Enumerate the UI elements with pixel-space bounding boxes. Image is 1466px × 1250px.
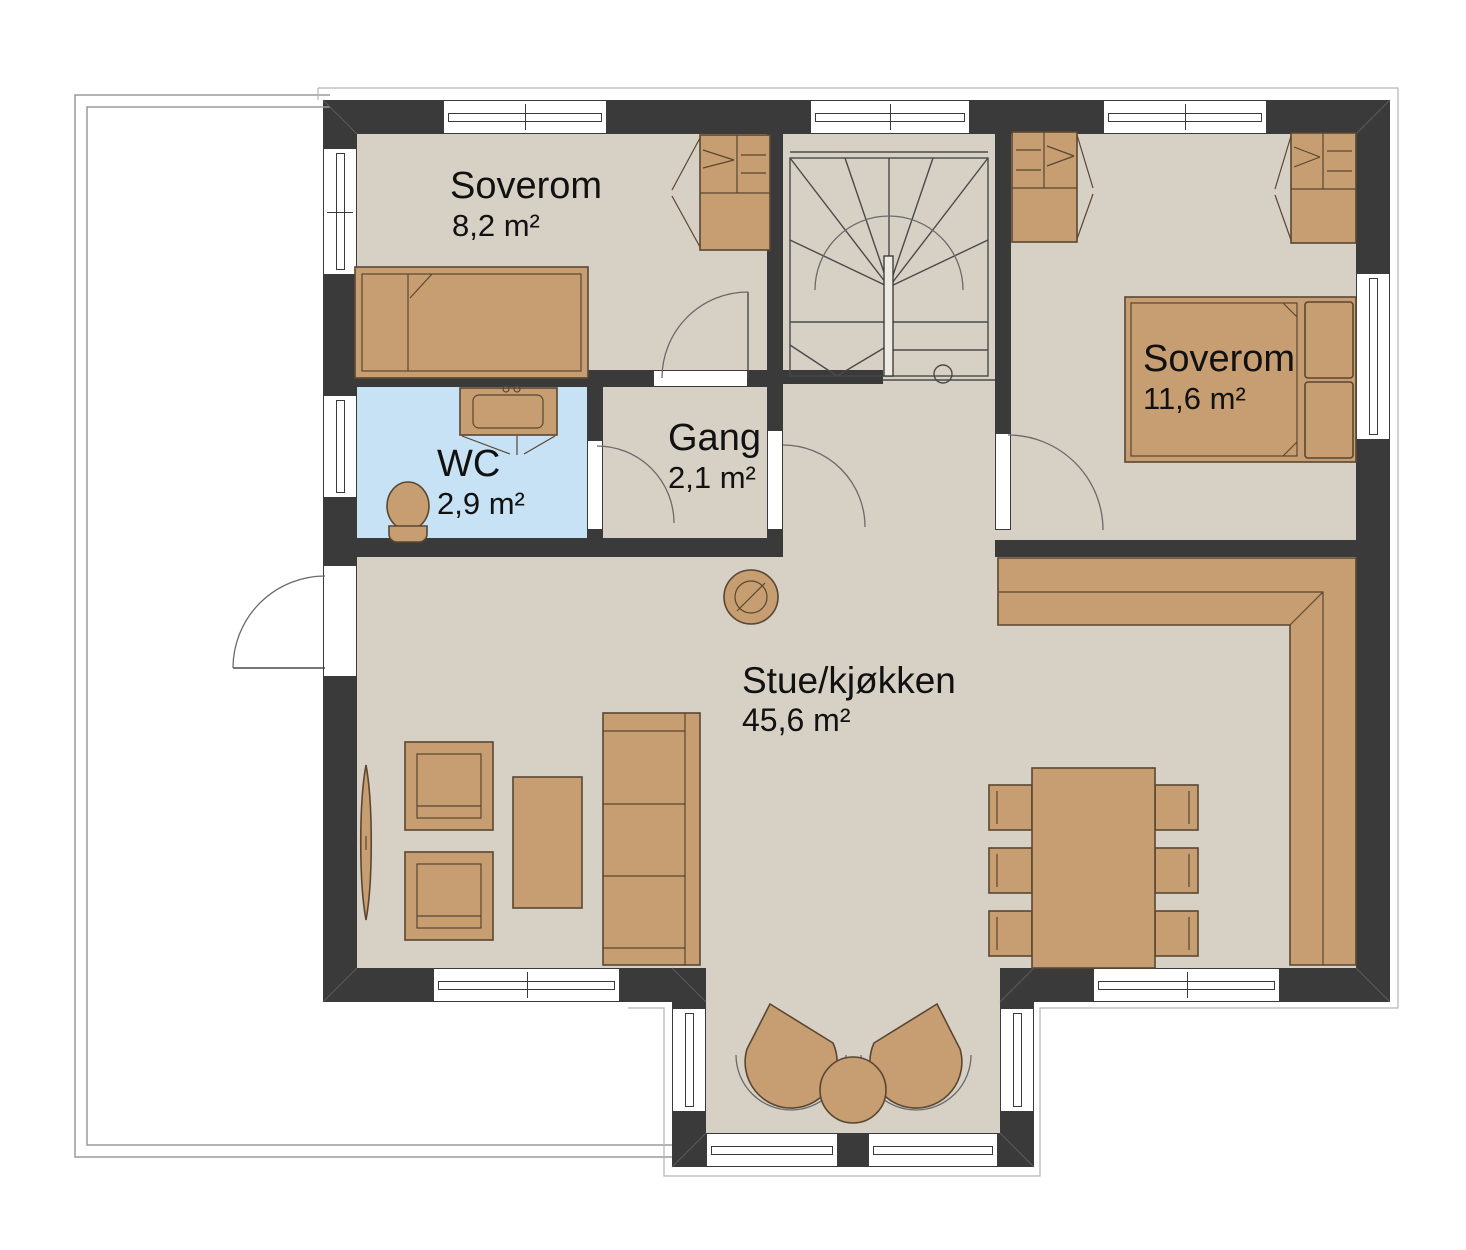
wall-stair-south — [783, 370, 883, 384]
floor-plan: Soverom 8,2 m² WC 2,9 m² Gang 2,1 m² Sov… — [0, 0, 1466, 1250]
room-label-gang: Gang — [668, 419, 761, 457]
window — [433, 968, 620, 1002]
door-opening — [323, 565, 357, 677]
window — [1103, 100, 1267, 134]
wall-soverom2-south — [995, 540, 1390, 557]
room-area-wc: 2,9 m² — [437, 488, 525, 519]
wall-stair-east — [995, 134, 1011, 433]
door-opening — [587, 440, 603, 530]
window — [443, 100, 607, 134]
window — [1356, 273, 1390, 440]
room-area-gang: 2,1 m² — [668, 462, 756, 493]
room-label-soverom-1: Soverom — [450, 167, 602, 205]
window — [672, 1008, 706, 1112]
door-opening — [653, 370, 748, 387]
room-area-soverom-2: 11,6 m² — [1143, 383, 1246, 414]
window — [810, 100, 970, 134]
window — [706, 1133, 838, 1167]
door-opening — [767, 430, 783, 530]
floor-bay — [706, 968, 1000, 1133]
door-opening — [995, 433, 1011, 530]
window — [868, 1133, 998, 1167]
room-area-soverom-1: 8,2 m² — [452, 210, 540, 241]
room-label-wc: WC — [437, 445, 500, 483]
room-label-soverom-2: Soverom — [1143, 340, 1295, 378]
window — [323, 148, 357, 275]
window — [1093, 968, 1280, 1002]
wall-gang-south — [323, 538, 783, 557]
window — [1000, 1008, 1034, 1112]
room-label-stue: Stue/kjøkken — [742, 662, 956, 699]
window — [323, 395, 357, 498]
room-area-stue: 45,6 m² — [742, 704, 850, 736]
entrance-door-swing — [233, 576, 325, 668]
wall-bay-stub — [838, 1133, 868, 1167]
